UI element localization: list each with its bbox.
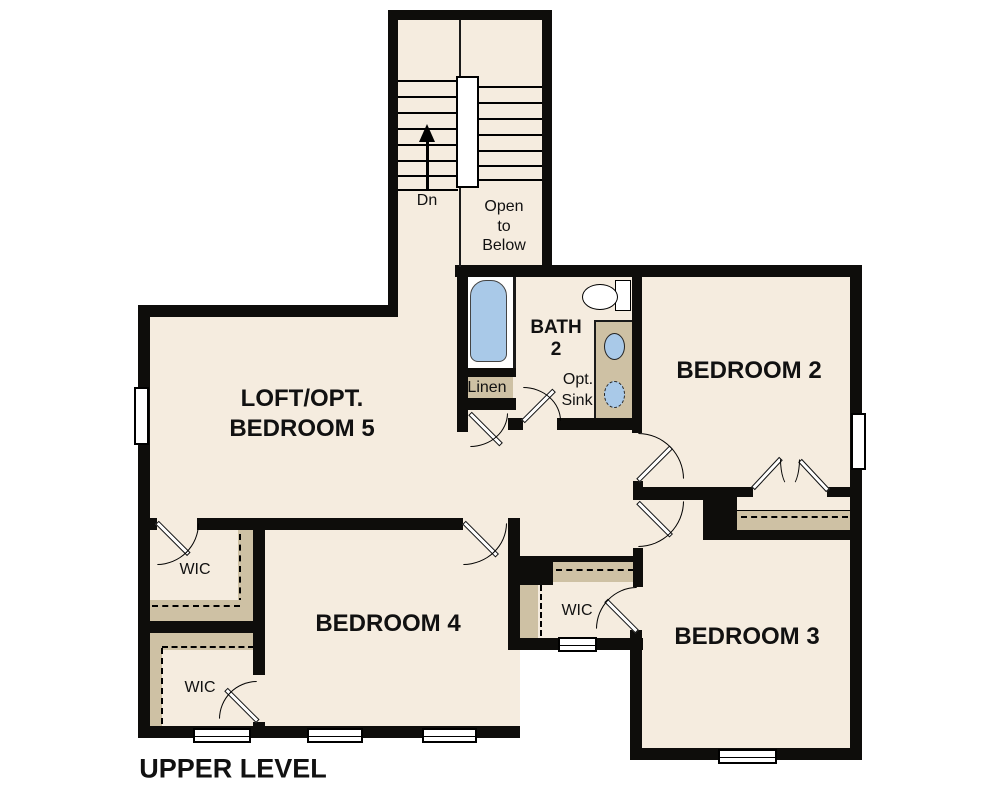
opt-sink-label-line1: Opt. — [563, 371, 593, 389]
bath-label-line2: 2 — [551, 339, 562, 361]
window-bed4-1 — [193, 728, 251, 743]
tub-niche-line — [513, 277, 516, 368]
wall-linen-bottom — [457, 398, 516, 410]
stair-tread — [479, 165, 542, 167]
loft-label-line1: LOFT/OPT. — [241, 385, 364, 413]
wall-stair-left — [388, 10, 398, 317]
window-bed3 — [718, 749, 777, 764]
vanity-edge-line — [594, 320, 633, 322]
wall-stair-right — [542, 10, 552, 277]
window-bed4-3 — [422, 728, 477, 743]
wall-wic-bed4-upper — [253, 518, 265, 675]
stair-tread — [479, 102, 542, 104]
wic-middle-shelf-left — [520, 582, 538, 638]
bedroom4-label: BEDROOM 4 — [315, 610, 460, 638]
wic-bottomleft-shelf-dash-v — [161, 648, 163, 724]
bath-label-line1: BATH — [530, 317, 581, 339]
wic-bottomleft-shelf-dash-h — [162, 646, 254, 648]
stair-rail — [456, 76, 479, 188]
open-below-label-line2: to — [497, 218, 510, 236]
bedroom3-label: BEDROOM 3 — [674, 623, 819, 651]
wic-bottomleft-label: WIC — [184, 679, 215, 697]
floor-plan: LOFT/OPT. BEDROOM 5 BEDROOM 2 BEDROOM 3 … — [0, 0, 1000, 800]
wall-hall-block — [520, 556, 553, 585]
wall-closet-stub-right — [827, 487, 852, 497]
wic-topleft-label: WIC — [179, 561, 210, 579]
sink-basin — [604, 333, 625, 360]
wall-right-outer — [850, 265, 862, 760]
wic-topleft-shelf-dash-h — [152, 605, 240, 607]
vanity-side-line — [594, 320, 596, 420]
stair-arrow-shaft — [426, 140, 429, 190]
wall-closet-stub-left — [737, 487, 753, 497]
wall-tub-bottom — [457, 368, 516, 377]
stair-tread — [479, 179, 542, 181]
stairs-down-label: Dn — [417, 192, 437, 210]
window-bed4-2 — [307, 728, 363, 743]
wic-middle-shelf-dash — [556, 569, 634, 571]
stair-tread — [398, 96, 458, 98]
wall-stub-bed2-bed3 — [633, 481, 643, 500]
opt-sink-label-line2: Sink — [561, 392, 592, 410]
wall-wicmid-top-thin — [553, 556, 637, 562]
toilet-bowl — [582, 284, 618, 310]
window-wic-middle — [558, 637, 597, 652]
wall-bath-bed2-top — [455, 265, 862, 277]
wic-middle-shelf-top — [553, 562, 637, 582]
wall-stub-bed3-wic — [633, 548, 643, 587]
bathtub — [470, 280, 507, 362]
wall-wic-divider — [138, 621, 265, 633]
wic-topleft-shelf-dash-v — [239, 534, 241, 604]
stair-tread — [479, 118, 542, 120]
wall-bed4-right — [508, 518, 520, 650]
window-loft-left — [134, 387, 149, 445]
bed2-closet-shelf-dash — [741, 516, 848, 518]
loft-label-line2: BEDROOM 5 — [229, 415, 374, 443]
plan-title: UPPER LEVEL — [139, 754, 327, 785]
stair-tread — [479, 134, 542, 136]
stair-arrow-head — [419, 124, 435, 142]
open-below-label-line3: Below — [482, 237, 526, 255]
stair-tread — [398, 80, 458, 82]
wall-bed3-top — [703, 530, 862, 540]
wall-loft-top — [138, 305, 398, 317]
wall-bed2-left — [632, 265, 642, 433]
stair-tread — [398, 112, 458, 114]
wall-stair-top — [388, 10, 552, 20]
stair-tread — [479, 150, 542, 152]
optional-sink-basin — [604, 381, 625, 408]
stair-tread — [479, 86, 542, 88]
wic-topleft-shelf-bottom — [150, 600, 256, 621]
wic-middle-label: WIC — [561, 602, 592, 620]
wall-bath-bottom-b — [557, 418, 637, 430]
linen-label: Linen — [467, 379, 506, 397]
window-bed2-right — [851, 413, 866, 470]
wall-wic-bed4-lower — [253, 722, 265, 738]
wall-loft-bottom-b — [197, 518, 463, 530]
bedroom2-label: BEDROOM 2 — [676, 357, 821, 385]
wall-bed3-top-left — [643, 487, 703, 500]
wic-middle-shelf-left-dash — [540, 585, 542, 636]
open-below-label-line1: Open — [484, 198, 523, 216]
bed2-closet-shelf — [737, 510, 852, 531]
